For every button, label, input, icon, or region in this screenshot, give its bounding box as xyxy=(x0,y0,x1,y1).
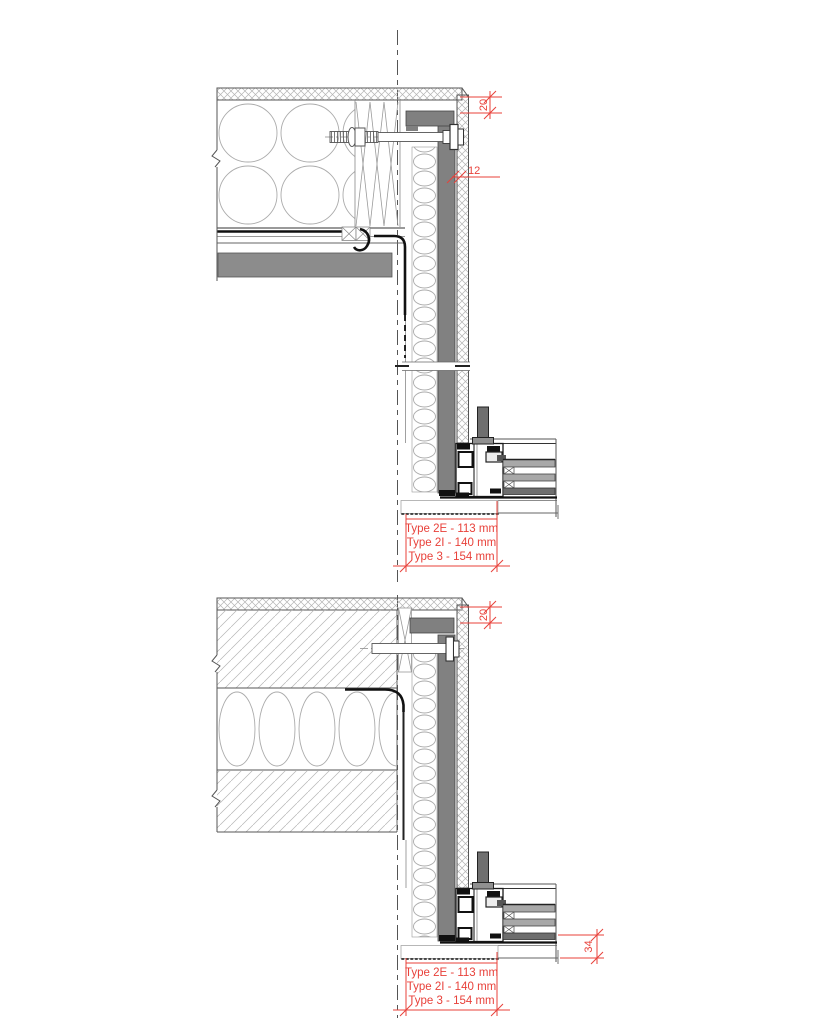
curtain-wall-buildup xyxy=(406,618,455,941)
ceiling-layers xyxy=(217,227,405,277)
dimension-sill-height xyxy=(558,929,604,964)
technical-drawing-canvas: 20 12 Type 2E - 113 mm Type 2I - 140 mm … xyxy=(0,0,819,1024)
dimension-head-gap-label: 20 xyxy=(478,609,490,621)
mineral-wool-strip xyxy=(412,648,437,937)
head-profile xyxy=(410,618,454,633)
mineral-wool-strip xyxy=(412,147,437,492)
bottom-detail: 20 34 Type 2E - 113 mm Type 2I - 140 mm … xyxy=(212,595,604,1018)
type-dimension-box: Type 2E - 113 mm Type 2I - 140 mm Type 3… xyxy=(393,952,510,1016)
wall-panel xyxy=(438,635,455,941)
dimension-sill-height-label: 34 xyxy=(583,940,595,952)
timber-blocking-strip xyxy=(356,100,400,227)
type-label-3: Type 3 - 154 mm xyxy=(408,551,494,563)
furring-strip xyxy=(399,608,412,672)
type-label-3: Type 3 - 154 mm xyxy=(408,995,494,1007)
slab-hatch-lower xyxy=(217,771,397,832)
type-label-2: Type 2I - 140 mm xyxy=(407,537,496,549)
section-detail-drawing: 20 12 Type 2E - 113 mm Type 2I - 140 mm … xyxy=(0,0,819,1024)
head-profile xyxy=(406,111,454,126)
type-label-1: Type 2E - 113 mm xyxy=(405,523,498,535)
panel-joint xyxy=(395,362,470,371)
insulation-band xyxy=(217,690,397,770)
dimension-head-gap-label: 20 xyxy=(478,99,490,111)
dimension-board-thickness-label: 12 xyxy=(468,165,480,177)
top-detail: 20 12 Type 2E - 113 mm Type 2I - 140 mm … xyxy=(212,30,558,582)
ceiling-slab-band xyxy=(218,253,392,277)
wall-panel xyxy=(438,125,455,493)
ceiling-insulation-batt xyxy=(217,100,355,227)
type-label-2: Type 2I - 140 mm xyxy=(407,981,496,993)
type-label-1: Type 2E - 113 mm xyxy=(405,967,498,979)
